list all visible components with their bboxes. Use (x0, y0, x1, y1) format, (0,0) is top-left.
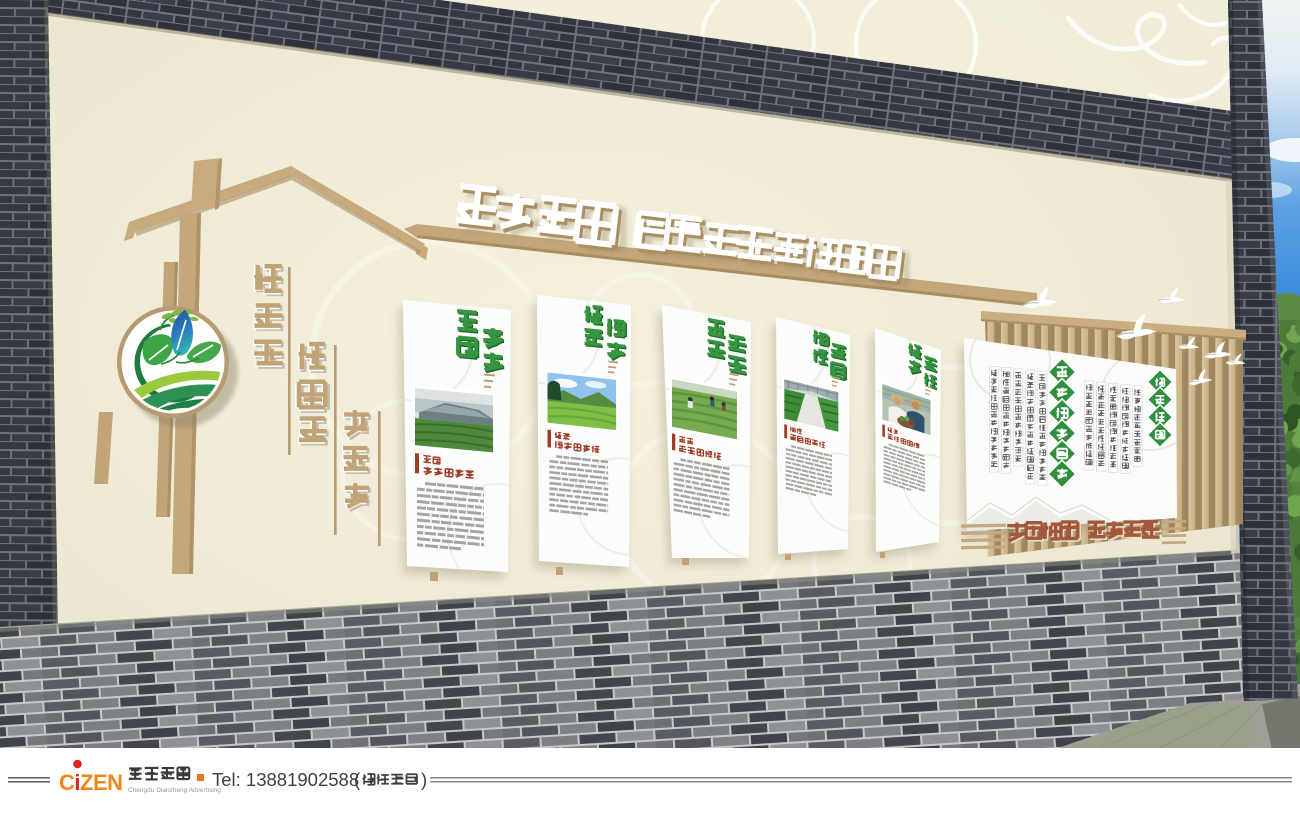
svg-text:Chengdu Dianzheng Advertising: Chengdu Dianzheng Advertising (128, 787, 221, 794)
svg-text:Tel: 13881902588: Tel: 13881902588 (212, 769, 359, 790)
svg-text:): ) (421, 769, 427, 790)
svg-text:CiZEN: CiZEN (59, 770, 123, 795)
svg-text:(: ( (354, 769, 361, 790)
